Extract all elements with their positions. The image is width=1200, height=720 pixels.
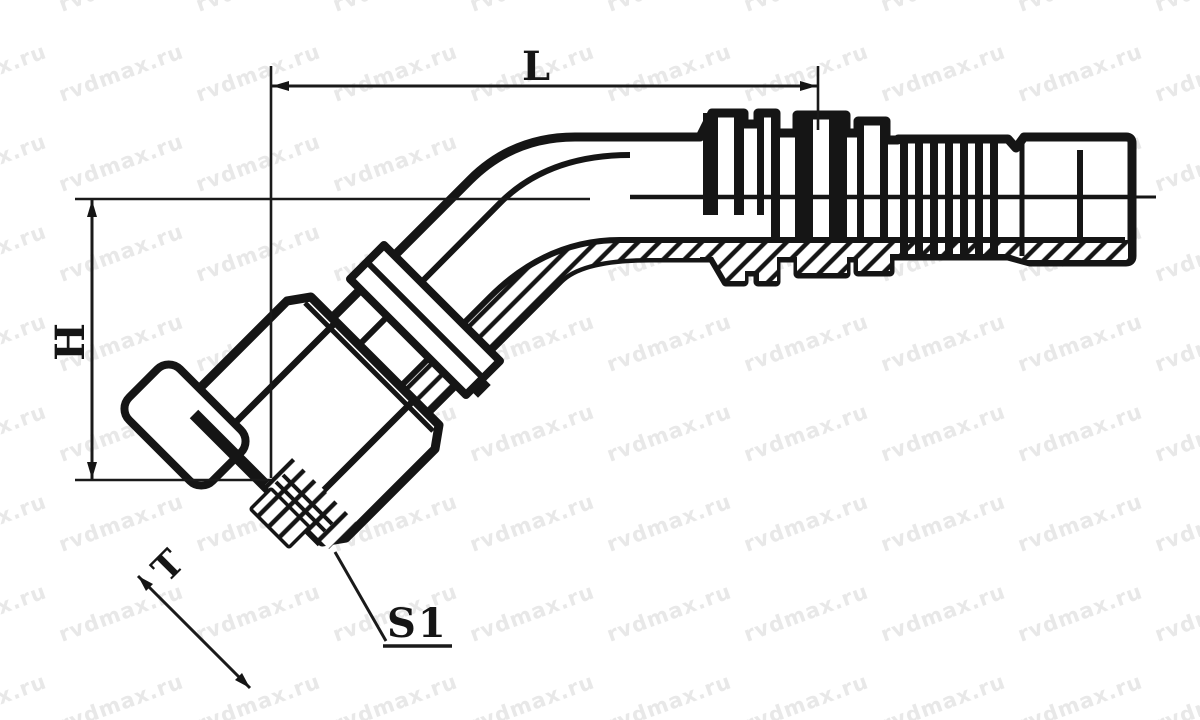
watermark-text: rvdmax.ru	[741, 399, 872, 466]
watermark-text: rvdmax.ru	[193, 669, 324, 720]
watermark-text: rvdmax.ru	[330, 129, 461, 196]
watermark-text: rvdmax.ru	[1152, 399, 1200, 466]
watermark-layer: rvdmax.rurvdmax.rurvdmax.rurvdmax.rurvdm…	[0, 0, 1200, 720]
watermark-text: rvdmax.ru	[1015, 489, 1146, 556]
watermark-text: rvdmax.ru	[878, 0, 1009, 17]
watermark-text: rvdmax.ru	[0, 309, 50, 376]
watermark-text: rvdmax.ru	[878, 39, 1009, 106]
watermark-text: rvdmax.ru	[467, 399, 598, 466]
watermark-text: rvdmax.ru	[56, 669, 187, 720]
watermark-text: rvdmax.ru	[330, 669, 461, 720]
watermark-text: rvdmax.ru	[1152, 489, 1200, 556]
watermark-text: rvdmax.ru	[1015, 0, 1146, 17]
watermark-text: rvdmax.ru	[330, 39, 461, 106]
watermark-text: rvdmax.ru	[0, 39, 50, 106]
watermark-text: rvdmax.ru	[56, 579, 187, 646]
watermark-text: rvdmax.ru	[741, 0, 872, 17]
technical-drawing-45deg-hose-fitting: rvdmax.rurvdmax.rurvdmax.rurvdmax.rurvdm…	[0, 0, 1200, 720]
watermark-text: rvdmax.ru	[878, 579, 1009, 646]
watermark-text: rvdmax.ru	[1152, 129, 1200, 196]
label-S1: S1	[387, 600, 448, 647]
watermark-text: rvdmax.ru	[56, 39, 187, 106]
watermark-text: rvdmax.ru	[56, 129, 187, 196]
watermark-text: rvdmax.ru	[878, 399, 1009, 466]
label-L: L	[522, 43, 550, 90]
watermark-text: rvdmax.ru	[878, 489, 1009, 556]
watermark-text: rvdmax.ru	[0, 489, 50, 556]
arrowhead-L-left	[272, 81, 289, 91]
watermark-text: rvdmax.ru	[0, 399, 50, 466]
watermark-text: rvdmax.ru	[878, 669, 1009, 720]
watermark-text: rvdmax.ru	[1152, 309, 1200, 376]
arrowhead-H-top	[87, 200, 97, 217]
watermark-text: rvdmax.ru	[1015, 669, 1146, 720]
watermark-text: rvdmax.ru	[467, 0, 598, 17]
watermark-text: rvdmax.ru	[0, 0, 50, 17]
screenshot-canvas: rvdmax.rurvdmax.rurvdmax.rurvdmax.rurvdm…	[0, 0, 1200, 720]
watermark-text: rvdmax.ru	[193, 219, 324, 286]
watermark-text: rvdmax.ru	[193, 129, 324, 196]
watermark-text: rvdmax.ru	[741, 489, 872, 556]
watermark-text: rvdmax.ru	[56, 0, 187, 17]
watermark-text: rvdmax.ru	[0, 129, 50, 196]
watermark-text: rvdmax.ru	[604, 39, 735, 106]
watermark-text: rvdmax.ru	[878, 309, 1009, 376]
watermark-text: rvdmax.ru	[1015, 399, 1146, 466]
arrowhead-H-bottom	[87, 462, 97, 479]
watermark-text: rvdmax.ru	[1152, 579, 1200, 646]
watermark-text: rvdmax.ru	[604, 309, 735, 376]
watermark-text: rvdmax.ru	[741, 39, 872, 106]
watermark-text: rvdmax.ru	[604, 669, 735, 720]
watermark-text: rvdmax.ru	[604, 489, 735, 556]
watermark-text: rvdmax.ru	[604, 579, 735, 646]
watermark-text: rvdmax.ru	[1152, 0, 1200, 17]
watermark-text: rvdmax.ru	[0, 579, 50, 646]
watermark-text: rvdmax.ru	[467, 669, 598, 720]
watermark-text: rvdmax.ru	[467, 489, 598, 556]
watermark-text: rvdmax.ru	[741, 579, 872, 646]
label-H: H	[47, 323, 94, 361]
watermark-text: rvdmax.ru	[193, 39, 324, 106]
watermark-text: rvdmax.ru	[604, 0, 735, 17]
watermark-text: rvdmax.ru	[741, 309, 872, 376]
watermark-text: rvdmax.ru	[193, 579, 324, 646]
watermark-text: rvdmax.ru	[741, 669, 872, 720]
watermark-text: rvdmax.ru	[0, 219, 50, 286]
watermark-text: rvdmax.ru	[330, 0, 461, 17]
watermark-text: rvdmax.ru	[467, 579, 598, 646]
watermark-text: rvdmax.ru	[1015, 309, 1146, 376]
watermark-text: rvdmax.ru	[1152, 39, 1200, 106]
watermark-text: rvdmax.ru	[1015, 579, 1146, 646]
watermark-text: rvdmax.ru	[193, 0, 324, 17]
watermark-text: rvdmax.ru	[1015, 39, 1146, 106]
watermark-text: rvdmax.ru	[1152, 219, 1200, 286]
watermark-text: rvdmax.ru	[56, 219, 187, 286]
watermark-text: rvdmax.ru	[604, 399, 735, 466]
watermark-text: rvdmax.ru	[1152, 669, 1200, 720]
watermark-text: rvdmax.ru	[0, 669, 50, 720]
